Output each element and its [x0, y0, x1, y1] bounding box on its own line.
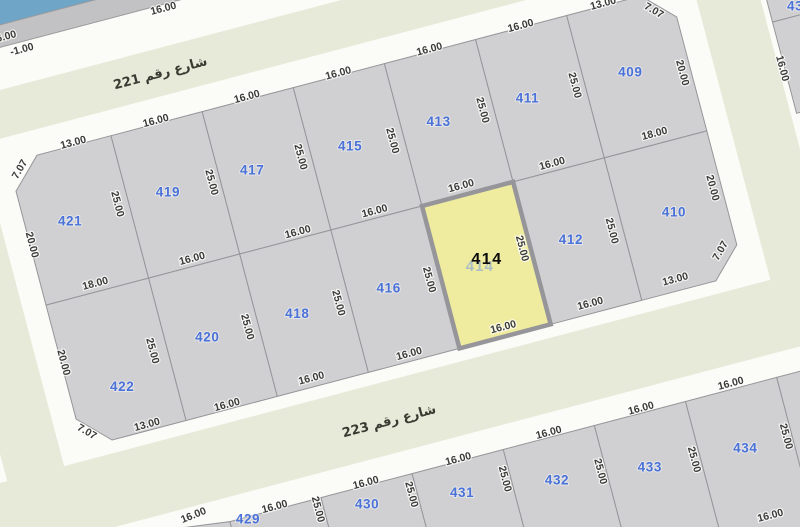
parcel-number-434: 434 [733, 441, 757, 456]
parcel-number-413: 413 [426, 114, 450, 129]
parcel-number-422: 422 [110, 379, 134, 394]
parcel-number-430: 430 [355, 496, 379, 511]
parcel-number-416: 416 [377, 281, 401, 296]
parcel-number-420: 420 [195, 330, 219, 345]
parcel-number-429: 429 [236, 511, 260, 526]
parcel-number-421: 421 [58, 214, 82, 229]
parcel-number-432: 432 [545, 473, 569, 488]
parcel-number-418: 418 [285, 306, 309, 321]
parcel-number-411: 411 [516, 90, 540, 105]
cadastral-map-canvas[interactable]: 13.0016.0016.0016.0016.0016.0013.007.077… [0, 0, 800, 527]
parcel-number-409: 409 [618, 65, 642, 80]
parcel-number-ne-corner-a: 43 [787, 0, 800, 14]
parcel-number-414: 414 [471, 251, 502, 268]
parcel-number-431: 431 [450, 485, 474, 500]
parcel-number-419: 419 [156, 185, 180, 200]
parcel-number-433: 433 [638, 460, 662, 475]
map-viewport[interactable]: 13.0016.0016.0016.0016.0016.0013.007.077… [0, 0, 800, 527]
parcel-number-410: 410 [662, 205, 686, 220]
parcel-number-415: 415 [338, 138, 362, 153]
parcel-number-412: 412 [559, 232, 583, 247]
parcel-number-417: 417 [240, 162, 264, 177]
